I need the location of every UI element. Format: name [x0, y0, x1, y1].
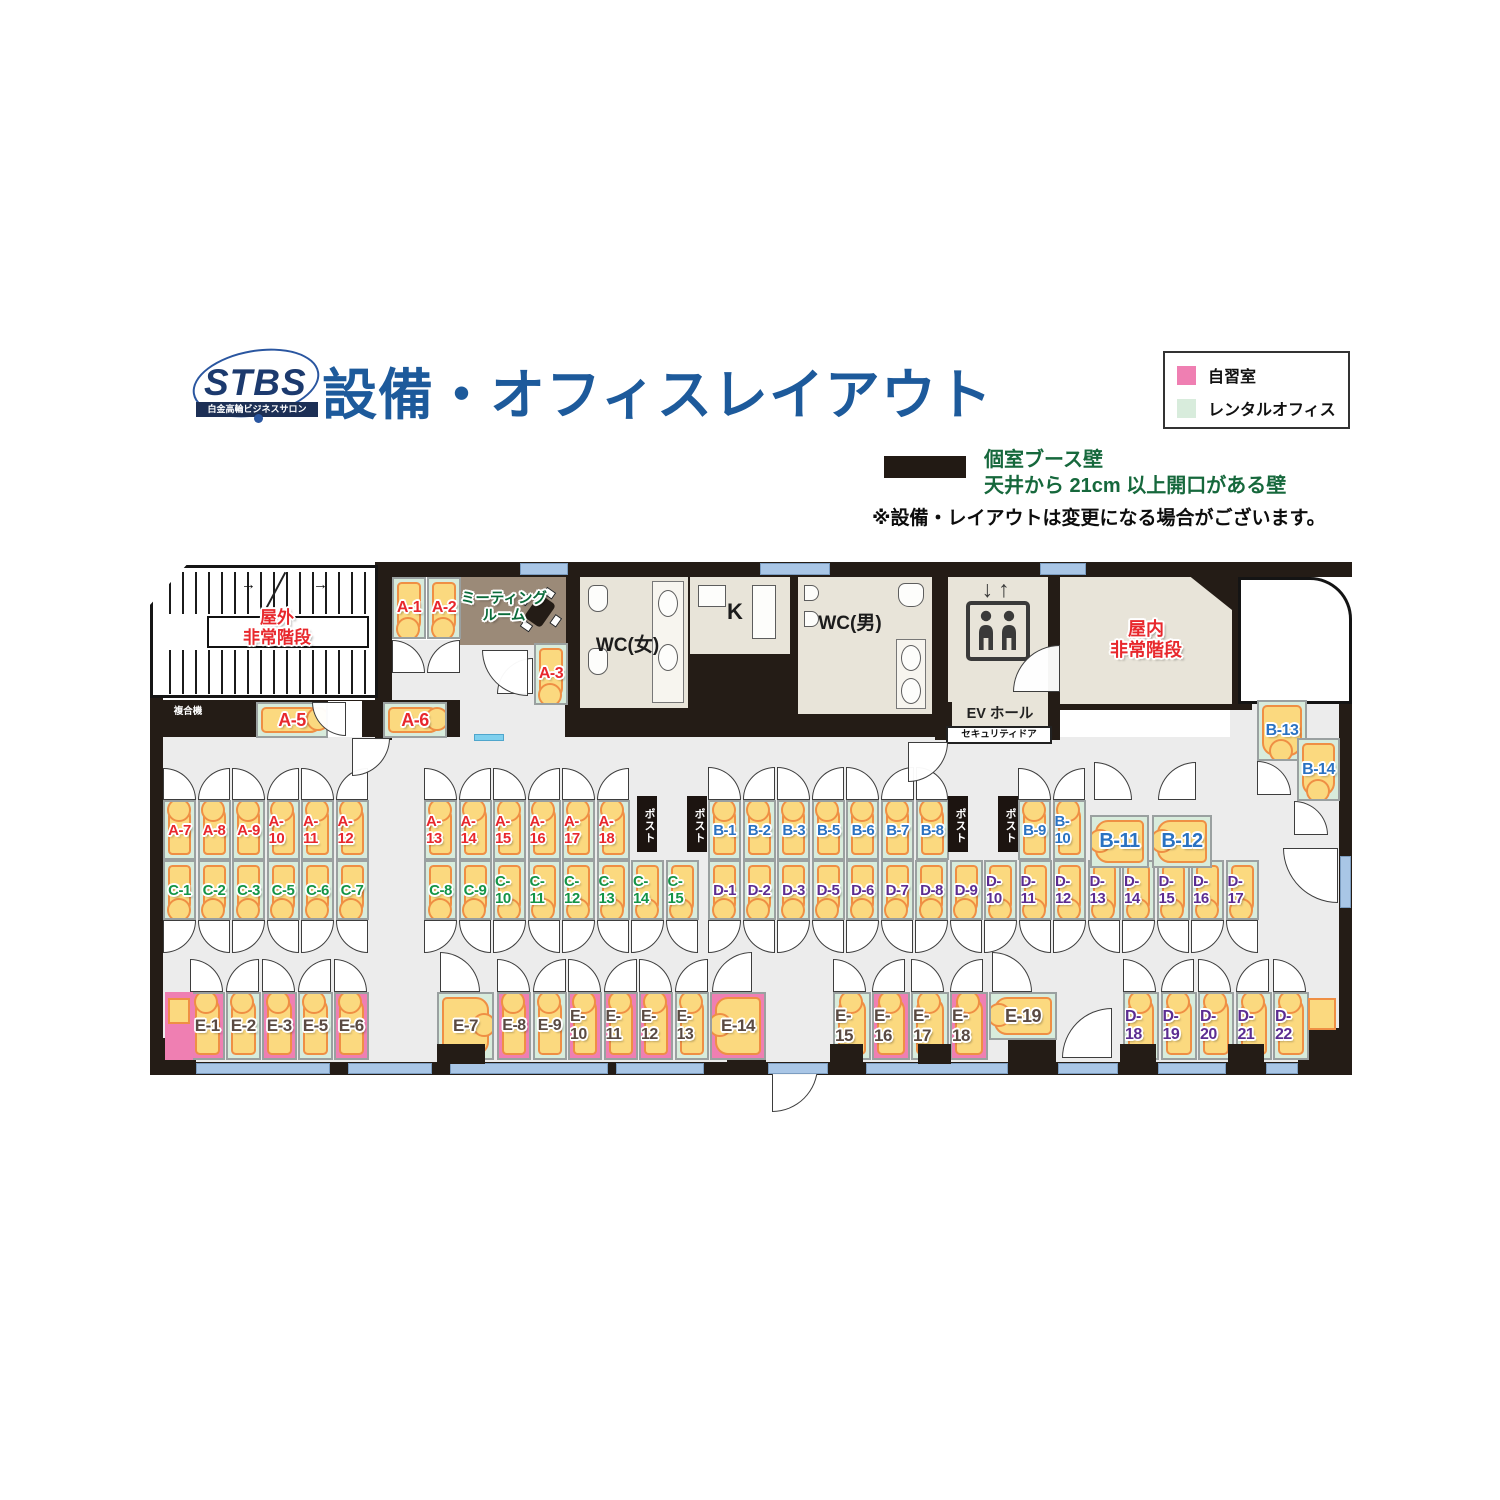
booth-E-3: E-3 [262, 992, 297, 1060]
booth-label: D-19 [1163, 994, 1195, 1058]
booth-label: D-5 [814, 862, 843, 918]
booth-C-9: C-9 [459, 860, 492, 920]
window [1040, 563, 1086, 575]
kitchen-room: K [690, 577, 790, 654]
indoor-emergency-stairs: 屋内 非常階段 [1060, 577, 1232, 704]
outdoor-emergency-stairs: → → 屋外 非常階段 [150, 565, 378, 698]
booth-label: E-18 [952, 994, 986, 1058]
booth-D-10: D-10 [984, 860, 1017, 920]
booth-label: B-3 [779, 802, 808, 858]
wall-stub [1228, 1044, 1264, 1064]
booth-C-10: C-10 [493, 860, 526, 920]
booth-label: A-11 [303, 802, 332, 858]
booth-label: E-12 [641, 994, 671, 1058]
wall [1008, 1036, 1056, 1064]
booth-label: A-17 [564, 802, 593, 858]
booth-label: C-1 [165, 862, 194, 918]
booth-label: C-15 [668, 862, 697, 918]
wall-stub [918, 1044, 951, 1064]
booth-A-15: A-15 [493, 800, 526, 860]
booth-D-19: D-19 [1161, 992, 1197, 1060]
booth-label: B-9 [1020, 802, 1049, 858]
booth-label: B-14 [1299, 740, 1338, 799]
urinal-icon [804, 585, 819, 601]
booth-label: B-7 [883, 802, 912, 858]
booth-A-7: A-7 [163, 800, 196, 860]
booth-label: E-11 [606, 994, 636, 1058]
booth-A-12: A-12 [336, 800, 369, 860]
post-box-label: ポスト [637, 796, 657, 852]
stair-treads [158, 650, 372, 694]
booth-D-3: D-3 [777, 860, 810, 920]
floor-plan-page: STBS 白金高輪ビジネスサロン 設備・オフィスレイアウト 自習室レンタルオフィ… [0, 0, 1500, 1500]
booth-label: B-6 [848, 802, 877, 858]
booth-A-13: A-13 [424, 800, 457, 860]
booth-C-12: C-12 [562, 860, 595, 920]
wc-men-room: WC(男) [798, 577, 932, 714]
booth-label: C-2 [200, 862, 229, 918]
booth-label: E-5 [300, 994, 331, 1058]
booth-label: D-3 [779, 862, 808, 918]
booth-B-12: B-12 [1152, 815, 1212, 868]
booth-label: D-6 [848, 862, 877, 918]
legend-swatch [1177, 399, 1196, 418]
booth-C-14: C-14 [631, 860, 664, 920]
booth-D-2: D-2 [743, 860, 776, 920]
booth-E-2: E-2 [226, 992, 261, 1060]
booth-label: C-10 [495, 862, 524, 918]
counter-icon [752, 585, 776, 639]
booth-A-14: A-14 [459, 800, 492, 860]
booth-D-9: D-9 [950, 860, 983, 920]
booth-label: E-6 [336, 994, 367, 1058]
booth-E-19: E-19 [989, 992, 1057, 1040]
booth-label: D-15 [1159, 862, 1188, 918]
booth-label: D-11 [1021, 862, 1050, 918]
booth-E-14: E-14 [710, 992, 766, 1060]
booth-label: E-10 [570, 994, 600, 1058]
logo-dot-icon [254, 414, 263, 423]
booth-wall-legend-label: 個室ブース壁 天井から 21cm 以上開口がある壁 [984, 447, 1286, 499]
booth-B-10: B-10 [1053, 800, 1086, 860]
booth-A-16: A-16 [528, 800, 561, 860]
window [1158, 1063, 1226, 1074]
booth-label: C-6 [303, 862, 332, 918]
logo-text: STBS [204, 362, 307, 404]
booth-label: A-3 [536, 645, 566, 703]
booth-label: D-12 [1055, 862, 1084, 918]
booth-E-16: E-16 [872, 992, 910, 1060]
booth-label: E-9 [535, 994, 565, 1058]
booth-label: C-8 [426, 862, 455, 918]
window [760, 563, 830, 575]
booth-D-13: D-13 [1088, 860, 1121, 920]
booth-D-7: D-7 [881, 860, 914, 920]
booth-label: A-16 [530, 802, 559, 858]
corner-desk [168, 998, 190, 1024]
booth-label: D-9 [952, 862, 981, 918]
post-box-label: ポスト [687, 796, 707, 852]
ev-hall-label: EV ホール [952, 702, 1048, 726]
stbs-logo: STBS 白金高輪ビジネスサロン [196, 352, 316, 434]
layout-change-note: ※設備・レイアウトは変更になる場合がございます。 [872, 503, 1326, 530]
booth-label: C-13 [599, 862, 628, 918]
booth-C-1: C-1 [163, 860, 196, 920]
outdoor-stairs-label: 屋外 非常階段 [187, 608, 367, 647]
booth-label: C-12 [564, 862, 593, 918]
legend-swatch [1177, 366, 1196, 385]
booth-B-5: B-5 [812, 800, 845, 860]
booth-C-6: C-6 [301, 860, 334, 920]
wall-stub [437, 1044, 485, 1064]
booth-label: A-8 [200, 802, 229, 858]
booth-label: E-3 [264, 994, 295, 1058]
booth-label: E-8 [499, 994, 529, 1058]
booth-E-8: E-8 [497, 992, 531, 1060]
window [866, 1063, 1008, 1074]
booth-E-13: E-13 [675, 992, 709, 1060]
booth-label: A-1 [394, 579, 424, 637]
copier-label: 複合機 [164, 703, 212, 717]
wc-women-label: WC(女) [580, 635, 675, 657]
booth-D-12: D-12 [1053, 860, 1086, 920]
booth-B-1: B-1 [708, 800, 741, 860]
booth-C-2: C-2 [198, 860, 231, 920]
booth-label: D-7 [883, 862, 912, 918]
booth-D-11: D-11 [1019, 860, 1052, 920]
room-type-legend: 自習室レンタルオフィス [1163, 351, 1350, 429]
legend-label: 自習室 [1208, 363, 1256, 387]
wall [150, 690, 163, 1075]
booth-label: C-9 [461, 862, 490, 918]
booth-B-14: B-14 [1297, 738, 1340, 801]
booth-label: B-12 [1154, 817, 1210, 866]
window [1058, 1063, 1118, 1074]
booth-D-14: D-14 [1122, 860, 1155, 920]
post-box-label: ポスト [998, 796, 1018, 852]
booth-label: A-7 [165, 802, 194, 858]
booth-B-9: B-9 [1018, 800, 1051, 860]
booth-label: D-1 [710, 862, 739, 918]
booth-label: E-13 [677, 994, 707, 1058]
elevator-people-icon [966, 601, 1030, 661]
booth-A-1: A-1 [392, 577, 426, 639]
legend-label: レンタルオフィス [1208, 396, 1336, 420]
legend-item: 自習室 [1177, 363, 1336, 387]
toilet-icon [588, 585, 608, 612]
booth-label: A-6 [385, 704, 445, 736]
booth-C-7: C-7 [336, 860, 369, 920]
window [616, 1063, 704, 1074]
security-door-label: セキュリティドア [946, 726, 1052, 744]
booth-E-9: E-9 [533, 992, 567, 1060]
window [768, 1063, 828, 1074]
window [450, 1063, 608, 1074]
booth-label: A-13 [426, 802, 455, 858]
meeting-room-label: ミーティング ルーム [454, 591, 554, 624]
booth-A-6: A-6 [383, 702, 447, 738]
booth-label: A-14 [461, 802, 490, 858]
window [520, 563, 568, 575]
stair-direction-arrow: → [313, 576, 328, 593]
booth-D-16: D-16 [1191, 860, 1224, 920]
glass-partition [474, 734, 504, 741]
booth-D-17: D-17 [1226, 860, 1259, 920]
wall-stub [1120, 1044, 1156, 1064]
booth-A-8: A-8 [198, 800, 231, 860]
booth-label: A-12 [338, 802, 367, 858]
window [1266, 1063, 1298, 1074]
booth-C-3: C-3 [232, 860, 265, 920]
elevator-arrows-icon: ↓↑ [948, 577, 1048, 601]
booth-label: A-10 [269, 802, 298, 858]
booth-D-6: D-6 [846, 860, 879, 920]
booth-label: C-7 [338, 862, 367, 918]
booth-C-15: C-15 [666, 860, 699, 920]
booth-label: D-14 [1124, 862, 1153, 918]
booth-label: D-10 [986, 862, 1015, 918]
booth-label: A-15 [495, 802, 524, 858]
booth-D-1: D-1 [708, 860, 741, 920]
booth-label: E-1 [192, 994, 223, 1058]
booth-D-22: D-22 [1273, 992, 1309, 1060]
booth-label: A-9 [234, 802, 263, 858]
toilet-icon [898, 583, 924, 607]
booth-label: B-1 [710, 802, 739, 858]
booth-label: D-22 [1275, 994, 1307, 1058]
wc-stall [896, 639, 926, 709]
wc-men-label: WC(男) [804, 613, 896, 635]
booth-label: B-5 [814, 802, 843, 858]
booth-label: E-14 [712, 994, 764, 1058]
booth-label: D-8 [917, 862, 946, 918]
booth-E-1: E-1 [190, 992, 225, 1060]
booth-B-11: B-11 [1090, 815, 1149, 868]
booth-B-8: B-8 [916, 800, 949, 860]
booth-A-17: A-17 [562, 800, 595, 860]
window [348, 1063, 432, 1074]
booth-A-18: A-18 [597, 800, 630, 860]
booth-A-11: A-11 [301, 800, 334, 860]
post-box-label: ポスト [948, 796, 968, 852]
booth-A-10: A-10 [267, 800, 300, 860]
booth-label: C-3 [234, 862, 263, 918]
booth-label: D-2 [745, 862, 774, 918]
booth-C-13: C-13 [597, 860, 630, 920]
booth-C-5: C-5 [267, 860, 300, 920]
wall-stub [830, 1044, 863, 1064]
booth-C-8: C-8 [424, 860, 457, 920]
booth-D-8: D-8 [915, 860, 948, 920]
window [1340, 856, 1351, 908]
booth-label: D-17 [1228, 862, 1257, 918]
booth-A-3: A-3 [534, 643, 568, 705]
booth-label: C-11 [530, 862, 559, 918]
booth-B-7: B-7 [881, 800, 914, 860]
booth-label: E-16 [874, 994, 908, 1058]
booth-label: B-11 [1092, 817, 1147, 866]
booth-E-6: E-6 [334, 992, 369, 1060]
booth-E-5: E-5 [298, 992, 333, 1060]
booth-label: E-2 [228, 994, 259, 1058]
corner-desk [1308, 998, 1336, 1030]
booth-C-11: C-11 [528, 860, 561, 920]
booth-E-12: E-12 [639, 992, 673, 1060]
booth-A-9: A-9 [232, 800, 265, 860]
booth-B-6: B-6 [846, 800, 879, 860]
booth-label: A-18 [599, 802, 628, 858]
wc-women-room: WC(女) [580, 577, 688, 708]
kitchen-label: K [720, 599, 750, 624]
page-title: 設備・オフィスレイアウト [322, 350, 993, 430]
stair-direction-arrow: → [241, 576, 256, 593]
booth-label: E-19 [991, 994, 1055, 1038]
booth-D-5: D-5 [812, 860, 845, 920]
booth-wall-legend-swatch [884, 456, 966, 478]
meeting-room: ミーティング ルーム [460, 577, 566, 645]
booth-label: C-14 [633, 862, 662, 918]
booth-E-11: E-11 [604, 992, 638, 1060]
indoor-stairs-label: 屋内 非常階段 [1086, 619, 1206, 660]
booth-label: B-2 [745, 802, 774, 858]
booth-E-10: E-10 [568, 992, 602, 1060]
booth-label: B-8 [918, 802, 947, 858]
booth-B-2: B-2 [743, 800, 776, 860]
booth-E-18: E-18 [950, 992, 988, 1060]
booth-label: C-5 [269, 862, 298, 918]
booth-label: D-13 [1090, 862, 1119, 918]
building-corner-exterior [1238, 577, 1352, 704]
booth-D-15: D-15 [1157, 860, 1190, 920]
booth-B-3: B-3 [777, 800, 810, 860]
legend-item: レンタルオフィス [1177, 396, 1336, 420]
window [196, 1063, 330, 1074]
booth-label: D-16 [1193, 862, 1222, 918]
booth-label: B-10 [1055, 802, 1084, 858]
